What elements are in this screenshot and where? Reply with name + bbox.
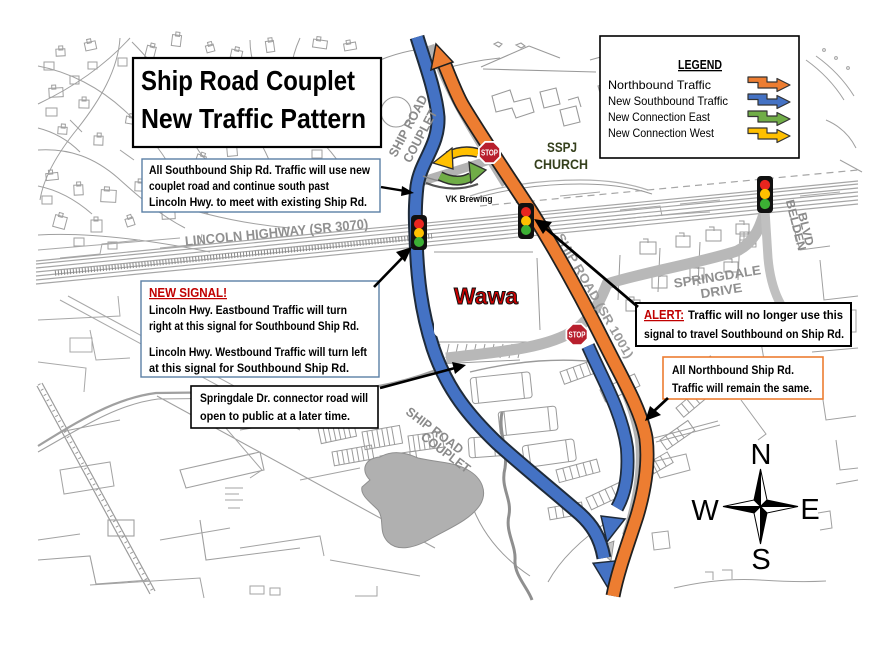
svg-text:All Southbound Ship Rd. Traffi: All Southbound Ship Rd. Traffic will use… [149,163,371,177]
svg-text:Traffic will no longer use thi: Traffic will no longer use this [688,308,843,322]
svg-text:All Northbound Ship Rd.: All Northbound Ship Rd. [672,363,794,377]
svg-text:NEW SIGNAL!: NEW SIGNAL! [149,286,227,300]
svg-text:Northbound Traffic: Northbound Traffic [608,78,711,92]
svg-text:Lincoln Hwy. Eastbound Traffic: Lincoln Hwy. Eastbound Traffic will turn [149,303,347,317]
svg-text:STOP: STOP [481,149,499,158]
svg-text:CHURCH: CHURCH [534,156,588,172]
svg-text:LEGEND: LEGEND [678,57,722,72]
svg-text:right at this signal for South: right at this signal for Southbound Ship… [149,319,359,333]
svg-text:W: W [691,495,719,527]
svg-text:Springdale Dr. connector road: Springdale Dr. connector road will [200,391,368,405]
svg-text:VK Brewing: VK Brewing [446,194,493,205]
svg-text:N: N [751,439,772,471]
svg-text:couplet road and continue sout: couplet road and continue south past [149,179,329,193]
svg-text:New Traffic Pattern: New Traffic Pattern [141,103,366,134]
svg-text:ALERT:: ALERT: [644,308,684,322]
svg-text:at this signal for Southbound: at this signal for Southbound Ship Rd. [149,361,349,375]
svg-text:Lincoln Hwy. to meet with exis: Lincoln Hwy. to meet with existing Ship … [149,195,367,209]
svg-text:Wawa: Wawa [454,283,518,309]
svg-text:New Connection West: New Connection West [608,126,715,140]
svg-text:Ship Road Couplet: Ship Road Couplet [141,65,355,96]
svg-text:New Connection East: New Connection East [608,110,711,124]
svg-text:signal to travel Southbound on: signal to travel Southbound on Ship Rd. [644,327,844,341]
svg-text:SSPJ: SSPJ [547,139,577,155]
svg-text:open to public at a later time: open to public at a later time. [200,409,350,423]
svg-text:S: S [751,544,770,576]
svg-text:E: E [800,494,819,526]
svg-text:STOP: STOP [569,331,587,340]
svg-text:Lincoln Hwy. Westbound Traffic: Lincoln Hwy. Westbound Traffic will turn… [149,345,367,359]
svg-text:New Southbound Traffic: New Southbound Traffic [608,94,728,108]
svg-text:Traffic will remain the same.: Traffic will remain the same. [672,381,812,395]
